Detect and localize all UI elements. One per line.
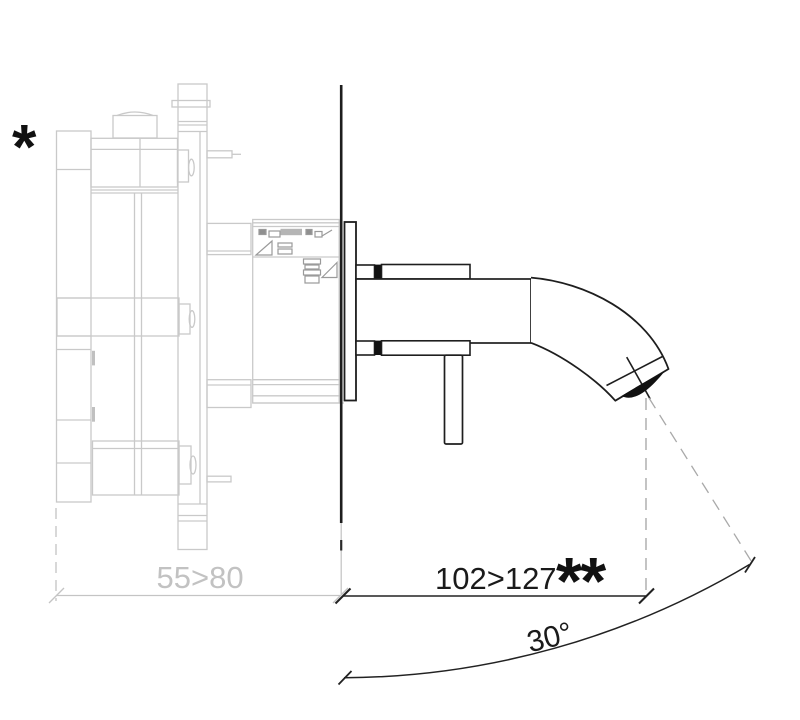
- svg-text:**: **: [556, 544, 607, 619]
- svg-text:102>127: 102>127: [435, 561, 557, 596]
- svg-text:55>80: 55>80: [157, 560, 244, 595]
- svg-text:*: *: [12, 113, 37, 183]
